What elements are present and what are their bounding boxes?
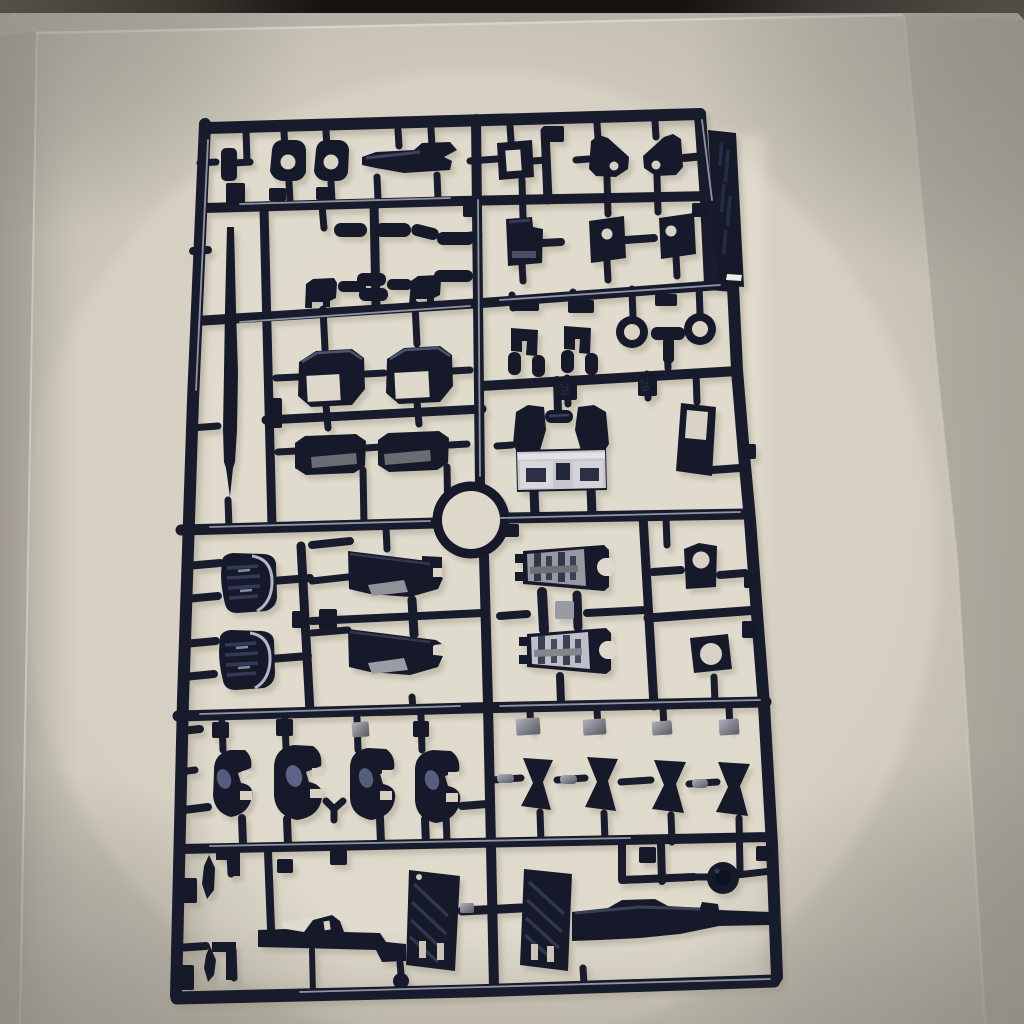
- svg-text:28: 28: [558, 383, 571, 396]
- svg-text:29: 29: [638, 379, 651, 392]
